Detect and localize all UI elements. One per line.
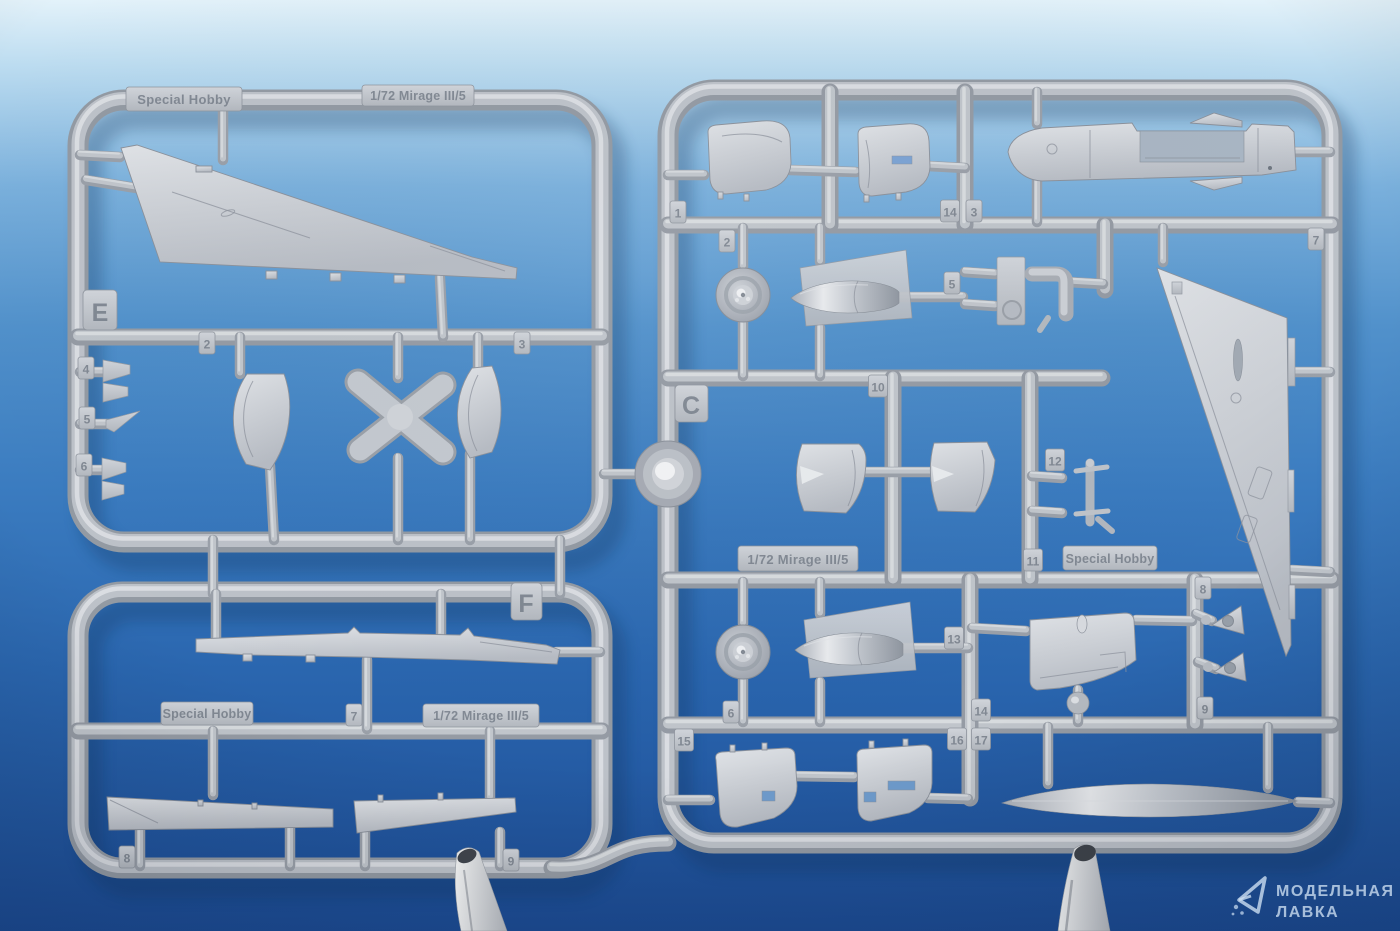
watermark-line1: МОДЕЛЬНАЯ: [1276, 883, 1394, 900]
watermark-line2: ЛАВКА: [1276, 904, 1339, 921]
vignette-overlay: [0, 0, 1400, 931]
photo-model-kit-sprues: E F Special Hobby 1/72 Mirage III/5 Spec…: [0, 0, 1400, 931]
